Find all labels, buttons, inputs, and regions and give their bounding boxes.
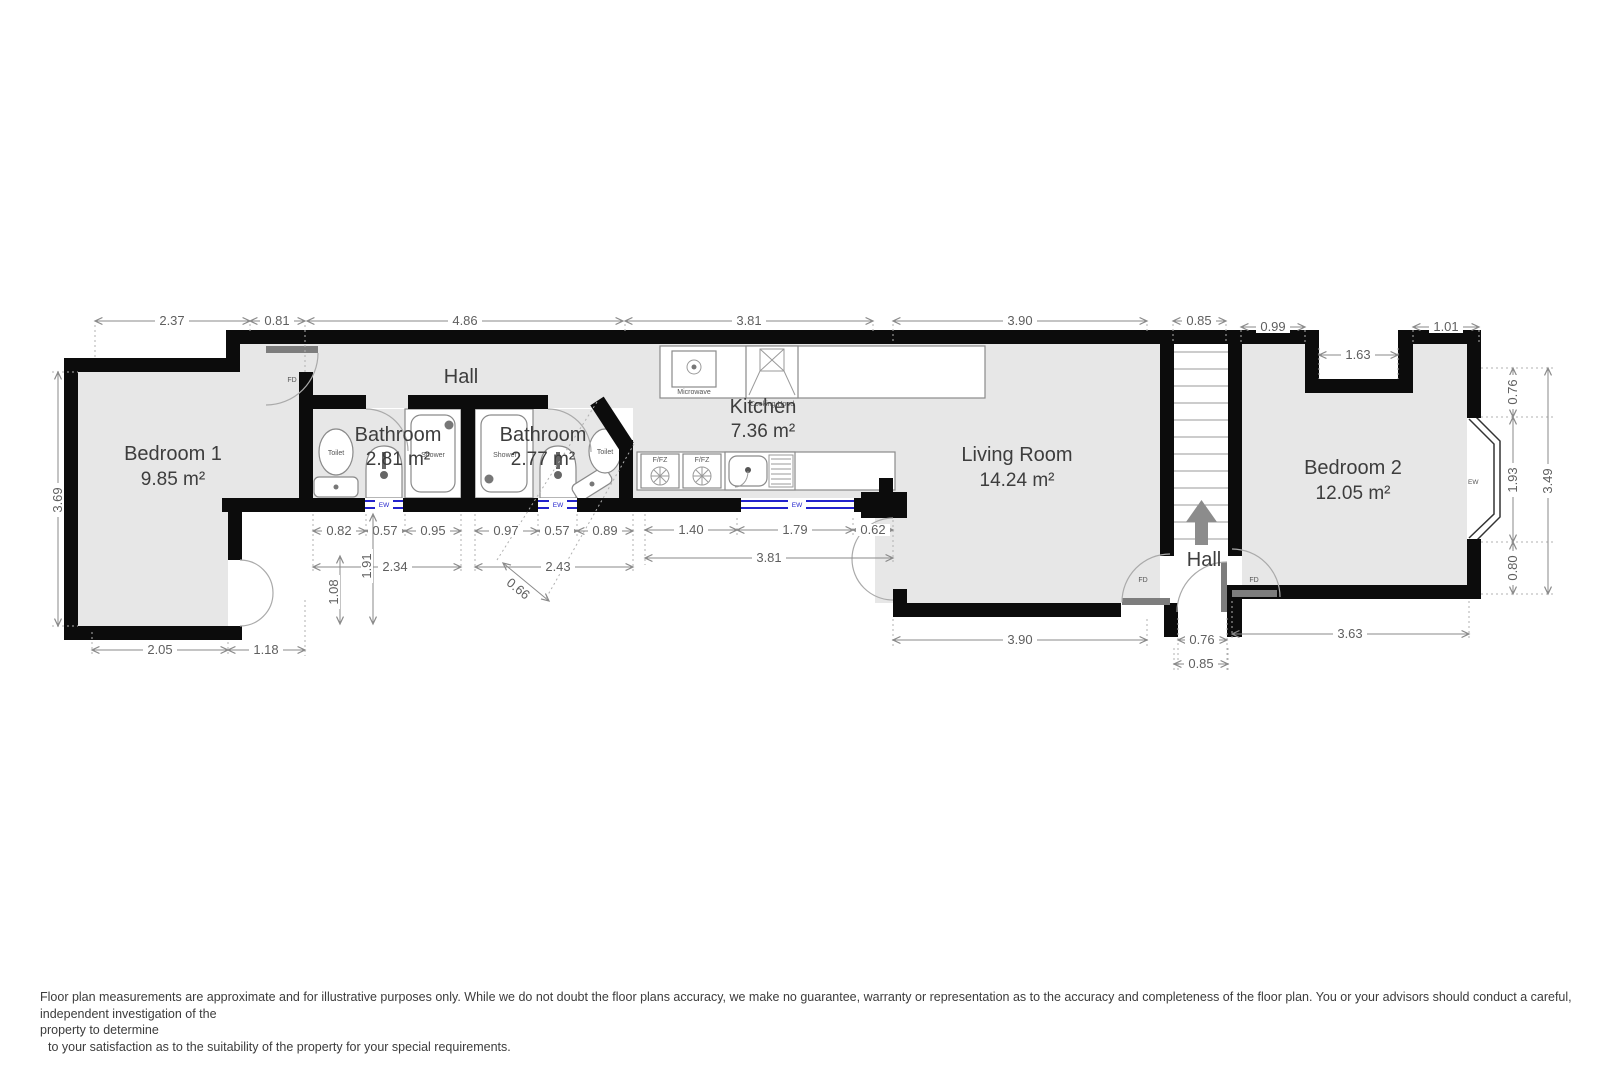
- room-label-hall2: Hall: [1187, 549, 1221, 571]
- dim-label: 1.18: [253, 642, 278, 657]
- room-label-kitchen: Kitchen: [730, 396, 797, 418]
- dim-label: 0.80: [1505, 555, 1520, 580]
- dim-kitchen: 1.40 1.79 0.62 3.81: [645, 522, 893, 565]
- microwave-label: Microwave: [677, 389, 711, 396]
- dim-label: 3.81: [756, 550, 781, 565]
- window-label: EW: [379, 502, 390, 509]
- dim-bathrooms: 0.82 0.57 0.95 0.97 0.57 0.89 2.34 2.43 …: [313, 514, 633, 624]
- disclaimer: Floor plan measurements are approximate …: [40, 989, 1585, 1055]
- microwave-icon: Microwave: [672, 351, 716, 396]
- dim-bottom: 2.05 1.18 3.90 0.76 0.85 3.63: [92, 626, 1469, 671]
- dim-label: 0.82: [326, 523, 351, 538]
- bay-window: EW: [1467, 409, 1500, 548]
- sink-icon: Sink: [725, 452, 795, 490]
- dim-label: 2.05: [147, 642, 172, 657]
- window-bathroom2: EW: [533, 498, 582, 512]
- room-area-bathroom1: 2.81 m²: [366, 449, 430, 470]
- dim-label: 1.01: [1433, 319, 1458, 334]
- dim-label: 1.08: [326, 579, 341, 604]
- dim-label: 3.69: [50, 487, 65, 512]
- dim-label: 0.76: [1505, 379, 1520, 404]
- dim-label: 0.97: [493, 523, 518, 538]
- room-area-bedroom2: 12.05 m²: [1316, 483, 1391, 504]
- window-label: EW: [792, 502, 803, 509]
- room-label-hall: Hall: [444, 366, 478, 388]
- window-label: EW: [553, 502, 564, 509]
- dim-label: 0.57: [544, 523, 569, 538]
- dim-label: 0.57: [372, 523, 397, 538]
- room-label-bedroom1: Bedroom 1: [124, 443, 222, 465]
- toilet-label: Toilet: [328, 450, 344, 457]
- dim-label: 0.85: [1186, 313, 1211, 328]
- window-bathroom1: EW: [360, 498, 408, 512]
- dim-label: 0.62: [860, 522, 885, 537]
- dim-label: 0.95: [420, 523, 445, 538]
- dim-label: 3.90: [1007, 632, 1032, 647]
- fridge-freezer-icon: F/FZ: [641, 454, 679, 488]
- dim-label: 0.76: [1189, 632, 1214, 647]
- dim-label: 1.93: [1505, 467, 1520, 492]
- dim-label: 1.40: [678, 522, 703, 537]
- dim-label: 2.34: [382, 559, 407, 574]
- fridge-freezer-icon: F/FZ: [683, 454, 721, 488]
- dim-label: 3.49: [1540, 468, 1555, 493]
- disclaimer-line3: to your satisfaction as to the suitabili…: [40, 1039, 1585, 1056]
- dim-label: 3.90: [1007, 313, 1032, 328]
- dim-label: 0.81: [264, 313, 289, 328]
- room-area-kitchen: 7.36 m²: [731, 421, 795, 442]
- dim-label: 0.99: [1260, 319, 1285, 334]
- dim-label: 1.63: [1345, 347, 1370, 362]
- fire-door-label: FD: [1138, 577, 1147, 584]
- room-label-bedroom2: Bedroom 2: [1304, 457, 1402, 479]
- room-label-bathroom2: Bathroom: [500, 424, 587, 446]
- window-label: EW: [1468, 479, 1479, 486]
- toilet-label: Toilet: [597, 449, 613, 456]
- sink-drainer: [769, 455, 793, 487]
- disclaimer-line2: property to determine: [40, 1022, 1585, 1039]
- dim-label: 0.85: [1188, 656, 1213, 671]
- dim-label: 3.81: [736, 313, 761, 328]
- fridge-freezer-label: F/FZ: [695, 457, 710, 464]
- room-area-living: 14.24 m²: [980, 470, 1055, 491]
- dim-left: 3.69: [50, 372, 65, 626]
- room-area-bathroom2: 2.77 m²: [511, 449, 575, 470]
- dim-label: 4.86: [452, 313, 477, 328]
- dim-label: 2.43: [545, 559, 570, 574]
- staircase: [1174, 344, 1228, 556]
- disclaimer-line1: Floor plan measurements are approximate …: [40, 989, 1585, 1022]
- room-area-bedroom1: 9.85 m²: [141, 469, 205, 490]
- dim-label: 3.63: [1337, 626, 1362, 641]
- dim-label: 0.89: [592, 523, 617, 538]
- dim-label: 1.91: [359, 553, 374, 578]
- floor-plan: Microwave Cooking Hood F/FZ F/FZ: [0, 0, 1620, 1080]
- dim-label: 1.79: [782, 522, 807, 537]
- fridge-freezer-label: F/FZ: [653, 457, 668, 464]
- french-doors-bedroom1: [240, 560, 273, 626]
- room-label-living: Living Room: [961, 444, 1072, 466]
- room-label-bathroom1: Bathroom: [355, 424, 442, 446]
- fire-door-label: FD: [1249, 577, 1258, 584]
- fire-door-label: FD: [287, 377, 296, 384]
- window-kitchen: EW: [735, 498, 860, 512]
- dim-label: 2.37: [159, 313, 184, 328]
- dim-right: 0.76 1.93 0.80 3.49: [1505, 368, 1555, 594]
